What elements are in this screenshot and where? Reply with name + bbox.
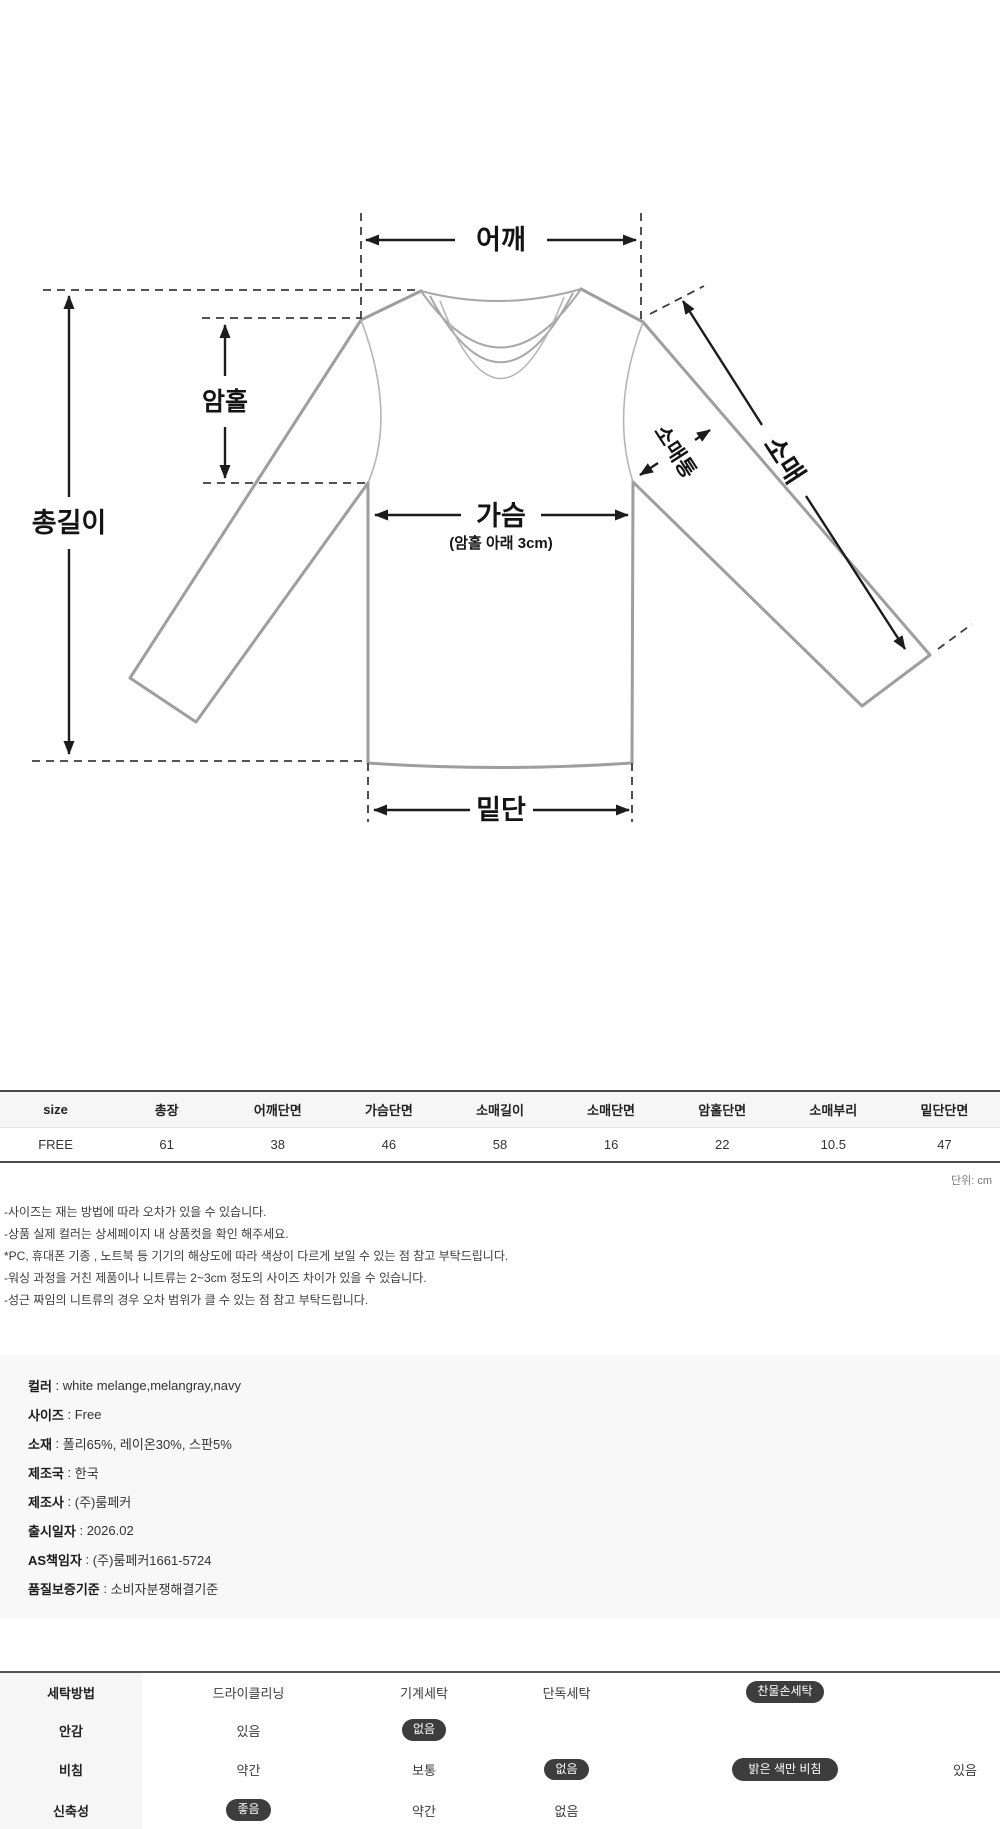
info-separator: :	[64, 1494, 75, 1509]
shirt-outline	[130, 289, 930, 768]
shoulder-label: 어깨	[476, 225, 526, 255]
info-separator: :	[64, 1407, 75, 1422]
chest-label: 가슴	[476, 501, 526, 531]
unit-note: 단위: cm	[951, 1172, 992, 1188]
care-option-selected: 없음	[544, 1759, 588, 1781]
care-row-elasticity: 신축성 좋음 약간 없음	[0, 1790, 1000, 1829]
info-separator: :	[52, 1378, 63, 1393]
note-line: -워싱 과정을 거친 제품이나 니트류는 2~3cm 정도의 사이즈 차이가 있…	[4, 1267, 508, 1289]
care-option: 있음	[930, 1749, 1000, 1790]
info-label: 컬러	[28, 1376, 52, 1395]
care-row-sheerness: 비침 약간 보통 없음 밝은 색만 비침 있음	[0, 1749, 1000, 1790]
note-line: -상품 실제 컬러는 상세페이지 내 상품컷을 확인 해주세요.	[4, 1223, 508, 1245]
care-row-label: 비침	[0, 1749, 142, 1790]
size-table-header-row: size 총장 어깨단면 가슴단면 소매길이 소매단면 암홀단면 소매부리 밑단…	[0, 1092, 1000, 1128]
size-table: size 총장 어깨단면 가슴단면 소매길이 소매단면 암홀단면 소매부리 밑단…	[0, 1090, 1000, 1163]
care-row-label: 안감	[0, 1711, 142, 1749]
care-row-label: 세탁방법	[0, 1673, 142, 1711]
size-table-header: 소매길이	[444, 1092, 555, 1127]
info-separator: :	[82, 1552, 93, 1567]
total-length-label: 총길이	[32, 508, 107, 538]
armhole-label: 암홀	[202, 388, 248, 416]
size-table-header: 밑단단면	[889, 1092, 1000, 1127]
info-value: white melange,melangray,navy	[63, 1378, 241, 1393]
care-option-selected: 밝은 색만 비침	[732, 1758, 838, 1782]
size-notes: -사이즈는 재는 방법에 따라 오차가 있을 수 있습니다. -상품 실제 컬러…	[4, 1201, 508, 1311]
info-label: 제조국	[28, 1463, 64, 1482]
care-option-text: 단독세탁	[543, 1683, 591, 1702]
care-option-text: 기계세탁	[400, 1683, 448, 1702]
note-line: *PC, 휴대폰 기종 , 노트북 등 기기의 해상도에 따라 색상이 다르게 …	[4, 1245, 508, 1267]
info-separator: :	[52, 1436, 63, 1451]
size-value: FREE	[0, 1128, 111, 1161]
size-table-header: 암홀단면	[667, 1092, 778, 1127]
info-label: 사이즈	[28, 1405, 64, 1424]
care-option: 있음	[142, 1711, 355, 1749]
info-size: 사이즈 : Free	[28, 1400, 1000, 1429]
note-line: -사이즈는 재는 방법에 따라 오차가 있을 수 있습니다.	[4, 1201, 508, 1223]
care-option: 드라이클리닝	[142, 1673, 355, 1711]
care-option-text: 약간	[412, 1801, 436, 1820]
care-option: 없음	[493, 1749, 640, 1790]
sleeve-width-label: 소매통	[649, 421, 700, 482]
info-value: Free	[75, 1407, 102, 1422]
info-label: 품질보증기준	[28, 1579, 100, 1598]
info-value: 소비자분쟁해결기준	[111, 1579, 219, 1598]
info-value: 폴리65%, 레이온30%, 스판5%	[63, 1434, 232, 1453]
size-value: 46	[333, 1128, 444, 1161]
info-material: 소재 : 폴리65%, 레이온30%, 스판5%	[28, 1429, 1000, 1458]
product-info-box: 컬러 : white melange,melangray,navy 사이즈 : …	[0, 1355, 1000, 1618]
info-release-date: 출시일자 : 2026.02	[28, 1516, 1000, 1545]
info-value: (주)룸페커1661-5724	[93, 1550, 212, 1569]
care-option: 단독세탁	[493, 1673, 640, 1711]
info-manufacturer: 제조사 : (주)룸페커	[28, 1487, 1000, 1516]
info-value: (주)룸페커	[75, 1492, 132, 1511]
measurement-diagram: 어깨 총길이 암홀 가슴 (암홀 아래 3cm) 소매 소매통 밑단	[0, 0, 1000, 930]
info-label: AS책임자	[28, 1550, 82, 1569]
info-label: 소재	[28, 1434, 52, 1453]
care-option: 기계세탁	[355, 1673, 493, 1711]
info-color: 컬러 : white melange,melangray,navy	[28, 1371, 1000, 1400]
info-value: 한국	[75, 1463, 99, 1482]
care-option-selected: 좋음	[226, 1799, 270, 1821]
size-value: 22	[667, 1128, 778, 1161]
size-table-header: 소매부리	[778, 1092, 889, 1127]
info-warranty: 품질보증기준 : 소비자분쟁해결기준	[28, 1574, 1000, 1603]
chest-note-label: (암홀 아래 3cm)	[449, 534, 553, 552]
info-separator: :	[100, 1581, 111, 1596]
care-option: 밝은 색만 비침	[640, 1749, 930, 1790]
product-detail-page: 어깨 총길이 암홀 가슴 (암홀 아래 3cm) 소매 소매통 밑단 size …	[0, 0, 1000, 1829]
size-table-header: 어깨단면	[222, 1092, 333, 1127]
care-option-text: 약간	[237, 1760, 261, 1779]
size-value: 38	[222, 1128, 333, 1161]
info-label: 출시일자	[28, 1521, 76, 1540]
care-option: 없음	[355, 1711, 493, 1749]
size-value: 61	[111, 1128, 222, 1161]
size-table-header: 총장	[111, 1092, 222, 1127]
care-row-label: 신축성	[0, 1790, 142, 1829]
care-option: 약간	[355, 1790, 493, 1829]
care-option-text: 있음	[953, 1760, 977, 1779]
note-line: -성근 짜임의 니트류의 경우 오차 범위가 클 수 있는 점 참고 부탁드립니…	[4, 1289, 508, 1311]
hem-label: 밑단	[476, 795, 526, 825]
size-value: 16	[556, 1128, 667, 1161]
size-value: 10.5	[778, 1128, 889, 1161]
care-option-selected: 찬물손세탁	[746, 1681, 823, 1703]
care-option-text: 드라이클리닝	[213, 1683, 285, 1702]
care-option: 찬물손세탁	[640, 1673, 930, 1711]
care-table: 세탁방법 드라이클리닝 기계세탁 단독세탁 찬물손세탁 안감 있음 없음 비침 …	[0, 1671, 1000, 1829]
care-option-text: 있음	[237, 1721, 261, 1740]
size-table-header: size	[0, 1092, 111, 1127]
info-country: 제조국 : 한국	[28, 1458, 1000, 1487]
care-option: 약간	[142, 1749, 355, 1790]
care-option-text: 없음	[555, 1801, 579, 1820]
care-row-lining: 안감 있음 없음	[0, 1711, 1000, 1749]
info-value: 2026.02	[87, 1523, 134, 1538]
care-option: 없음	[493, 1790, 640, 1829]
care-option-text: 보통	[412, 1760, 436, 1779]
size-value: 58	[444, 1128, 555, 1161]
size-value: 47	[889, 1128, 1000, 1161]
info-separator: :	[76, 1523, 87, 1538]
size-table-header: 소매단면	[556, 1092, 667, 1127]
info-separator: :	[64, 1465, 75, 1480]
care-option: 보통	[355, 1749, 493, 1790]
sleeve-label: 소매	[758, 431, 810, 489]
care-option-selected: 없음	[402, 1719, 446, 1741]
care-option: 좋음	[142, 1790, 355, 1829]
size-table-header: 가슴단면	[333, 1092, 444, 1127]
info-as-contact: AS책임자 : (주)룸페커1661-5724	[28, 1545, 1000, 1574]
shirt-diagram-svg: 어깨 총길이 암홀 가슴 (암홀 아래 3cm) 소매 소매통 밑단	[0, 0, 1000, 930]
size-table-row: FREE 61 38 46 58 16 22 10.5 47	[0, 1128, 1000, 1161]
info-label: 제조사	[28, 1492, 64, 1511]
care-row-washing: 세탁방법 드라이클리닝 기계세탁 단독세탁 찬물손세탁	[0, 1673, 1000, 1711]
